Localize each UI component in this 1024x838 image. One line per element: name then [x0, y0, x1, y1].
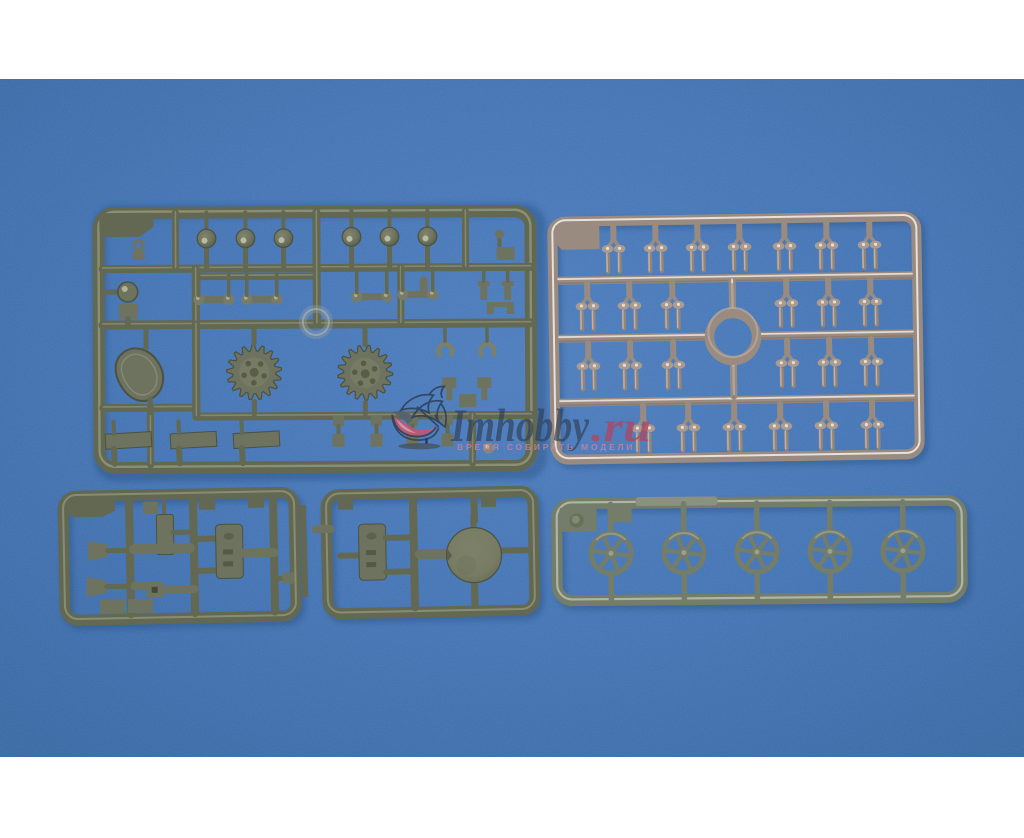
svg-text:ВРЕМЯ СОБИРАТЬ МОДЕЛИ: ВРЕМЯ СОБИРАТЬ МОДЕЛИ [457, 442, 635, 452]
